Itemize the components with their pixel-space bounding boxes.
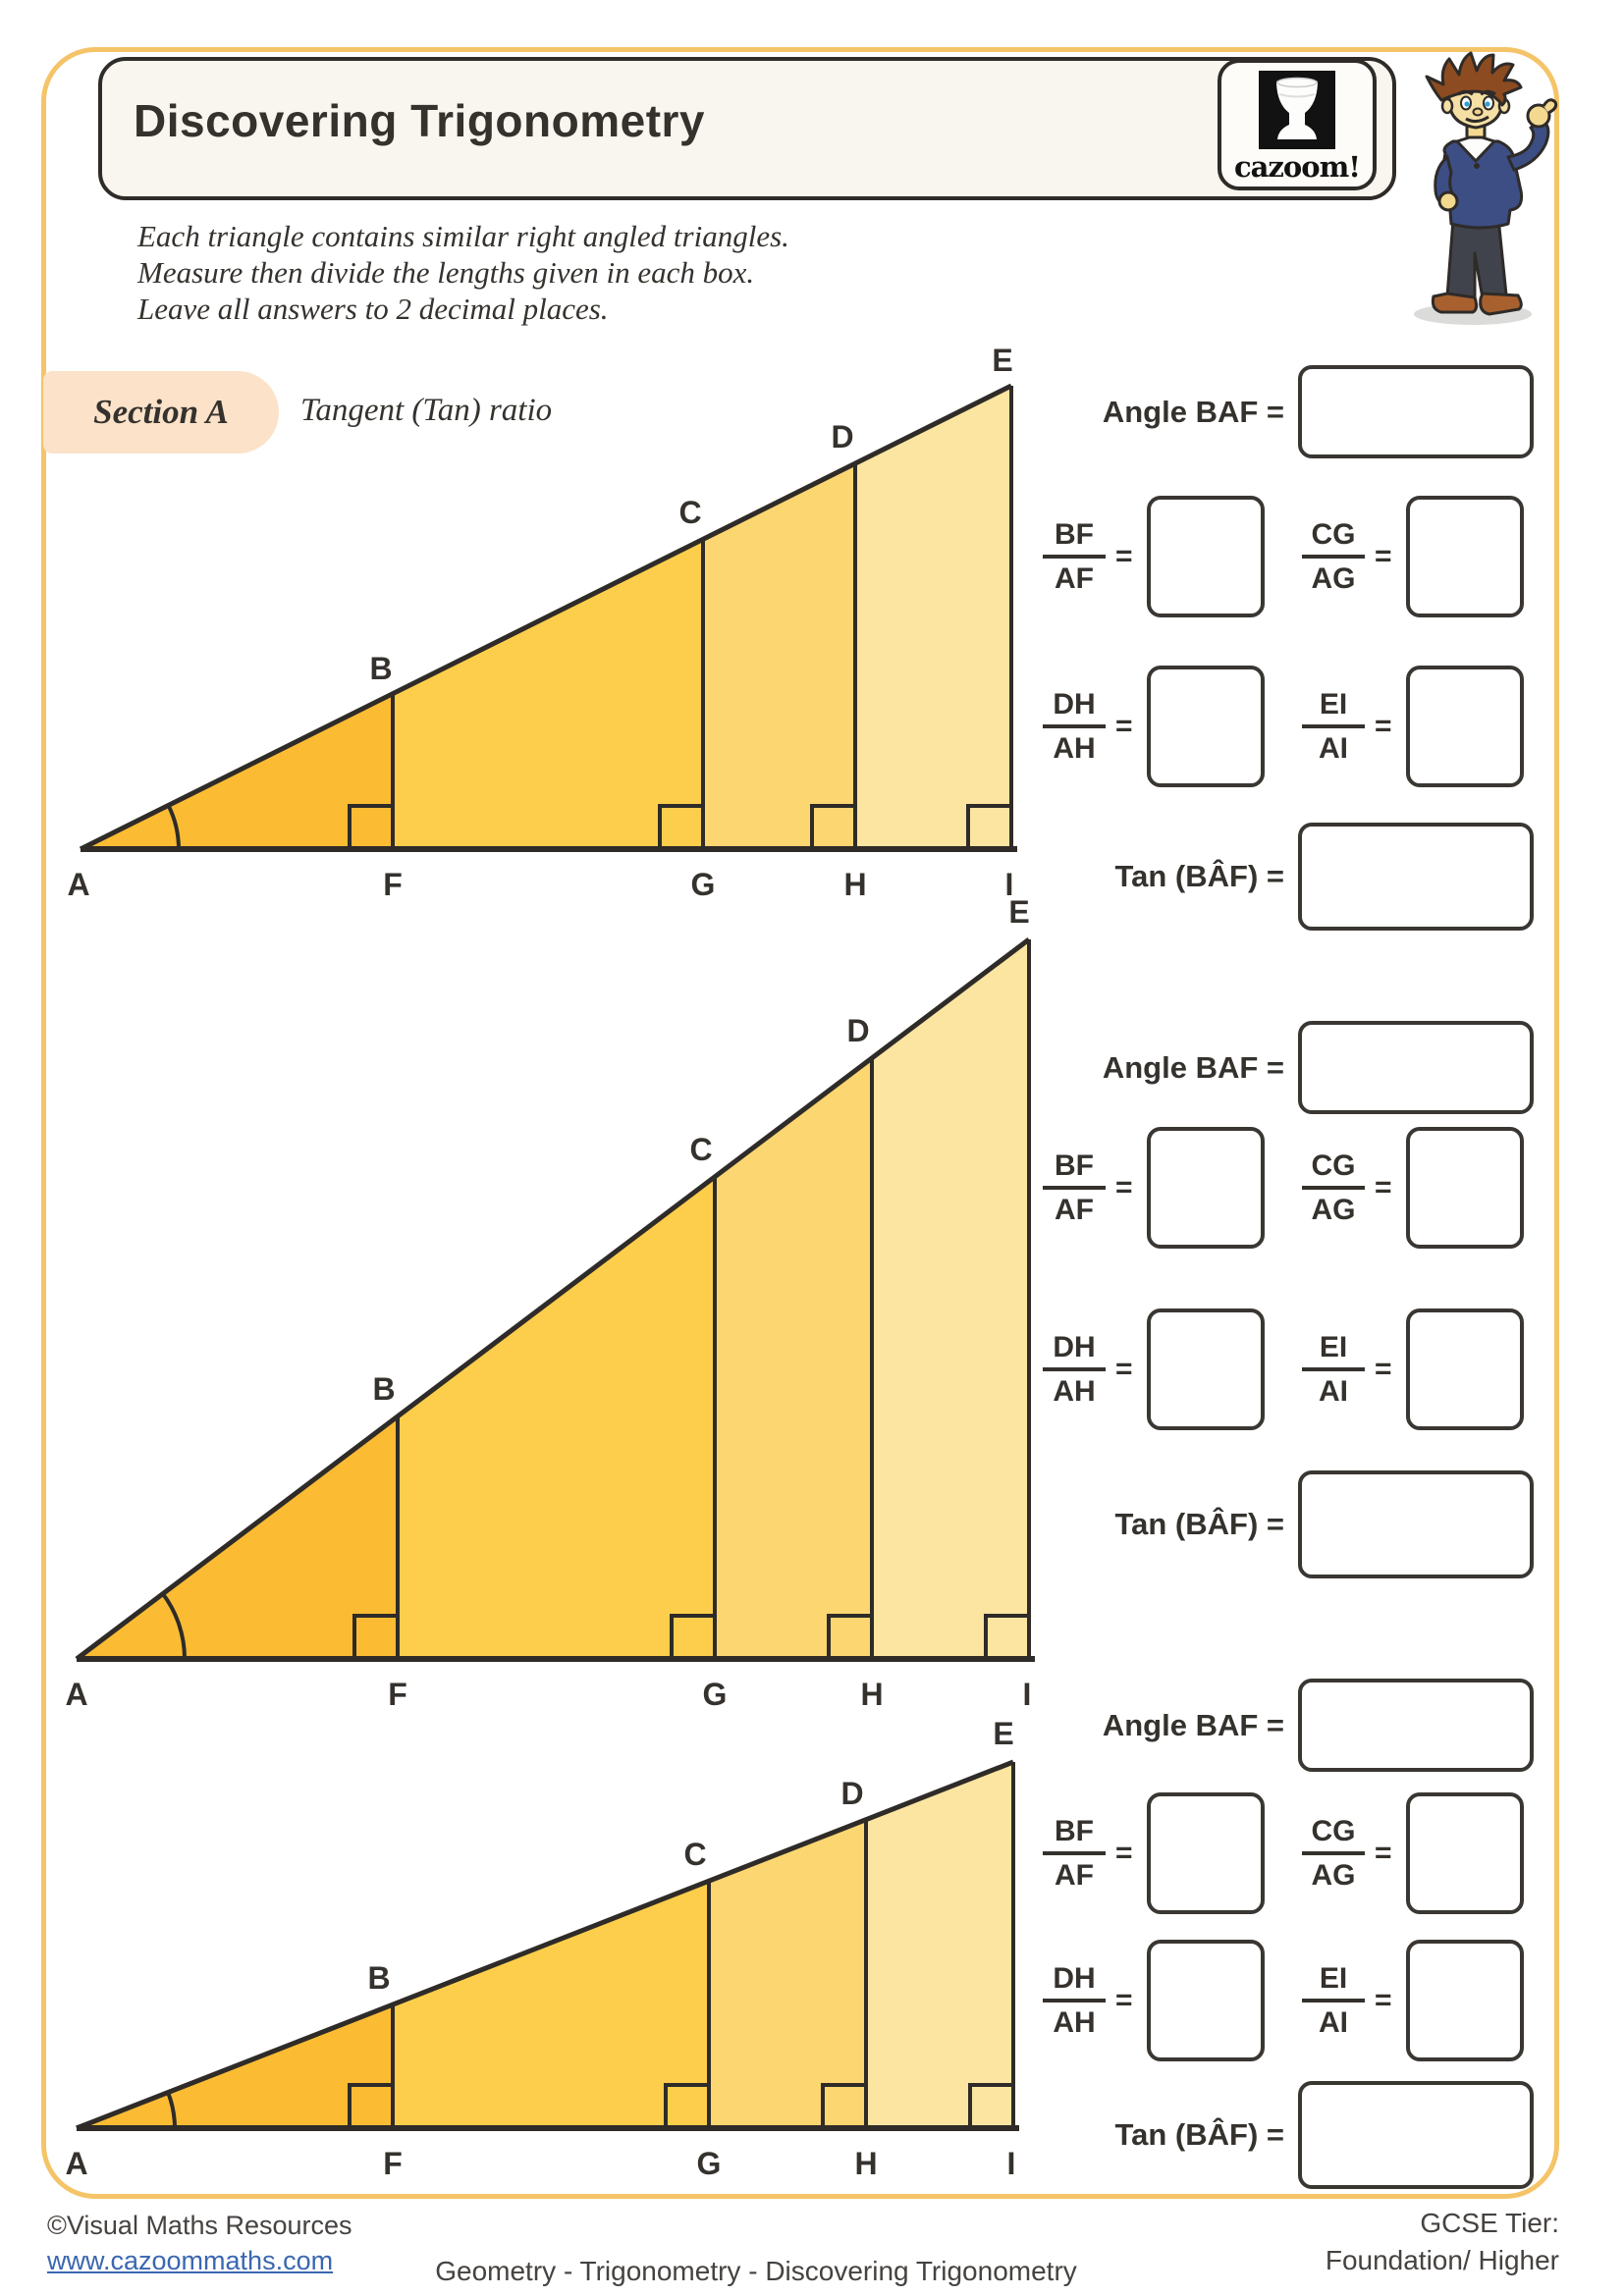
t1-label-d: D bbox=[831, 419, 853, 454]
fraction-bar bbox=[1302, 1367, 1365, 1371]
worksheet-page: Discovering Trigonometry cazoom! bbox=[0, 0, 1624, 2296]
t3-label-f: F bbox=[383, 2146, 403, 2181]
equals-sign: = bbox=[1115, 1984, 1133, 2017]
fraction-bar bbox=[1302, 724, 1365, 728]
set2-cg-ag-answer-box[interactable] bbox=[1406, 1127, 1524, 1249]
frac-den: AH bbox=[1053, 1376, 1095, 1408]
triangle3-band-fg bbox=[393, 1881, 709, 2128]
set3-tan-label: Tan (BÂF) = bbox=[1115, 2117, 1285, 2153]
set1-frac-cg-ag: CG AG = bbox=[1302, 496, 1524, 617]
set2-angle-label: Angle BAF = bbox=[1103, 1050, 1284, 1086]
t3-label-d: D bbox=[840, 1776, 863, 1811]
fraction-ei-ai: EI AI bbox=[1302, 689, 1365, 765]
fraction-bar bbox=[1302, 555, 1365, 559]
t2-label-i: I bbox=[1023, 1677, 1032, 1712]
fraction-dh-ah: DH AH bbox=[1043, 689, 1106, 765]
triangle1-band-fg bbox=[393, 539, 703, 849]
frac-num: BF bbox=[1055, 519, 1094, 551]
set3-cg-ag-answer-box[interactable] bbox=[1406, 1792, 1524, 1914]
set1-dh-ah-answer-box[interactable] bbox=[1147, 666, 1265, 787]
triangle-2: A F G H I B C D E bbox=[65, 894, 1035, 1712]
set3-frac-ei-ai: EI AI = bbox=[1302, 1940, 1524, 2061]
t2-label-d: D bbox=[846, 1013, 869, 1048]
equals-sign: = bbox=[1115, 1837, 1133, 1870]
frac-den: AG bbox=[1312, 1195, 1356, 1226]
frac-num: DH bbox=[1053, 689, 1095, 721]
set1-bf-af-answer-box[interactable] bbox=[1147, 496, 1265, 617]
set3-tan-answer-box[interactable] bbox=[1298, 2081, 1534, 2189]
frac-num: DH bbox=[1053, 1963, 1095, 1995]
t3-label-g: G bbox=[697, 2146, 722, 2181]
set1-frac-bf-af: BF AF = bbox=[1043, 496, 1265, 617]
frac-num: DH bbox=[1053, 1332, 1095, 1363]
triangle-1: A F G H I B C D E bbox=[67, 343, 1017, 902]
frac-den: AG bbox=[1312, 563, 1356, 595]
footer-tier: GCSE Tier: Foundation/ Higher bbox=[1326, 2205, 1559, 2279]
frac-den: AF bbox=[1055, 1860, 1094, 1892]
t2-label-b: B bbox=[372, 1371, 395, 1407]
t2-label-g: G bbox=[703, 1677, 728, 1712]
frac-num: EI bbox=[1320, 1963, 1347, 1995]
fraction-ei-ai: EI AI bbox=[1302, 1332, 1365, 1408]
equals-sign: = bbox=[1375, 1171, 1392, 1204]
t2-label-h: H bbox=[860, 1677, 883, 1712]
fraction-cg-ag: CG AG bbox=[1302, 1150, 1365, 1226]
fraction-bar bbox=[1043, 1186, 1106, 1190]
set3-angle-answer-box[interactable] bbox=[1298, 1679, 1534, 1772]
equals-sign: = bbox=[1115, 710, 1133, 743]
triangle-3: A F G H I B C D E bbox=[65, 1716, 1019, 2181]
set3-tan-row: Tan (BÂF) = bbox=[1115, 2081, 1535, 2189]
frac-den: AF bbox=[1055, 1195, 1094, 1226]
footer-tier-line2: Foundation/ Higher bbox=[1326, 2242, 1559, 2279]
set1-frac-dh-ah: DH AH = bbox=[1043, 666, 1265, 787]
t3-label-h: H bbox=[854, 2146, 877, 2181]
set3-ei-ai-answer-box[interactable] bbox=[1406, 1940, 1524, 2061]
set1-tan-label: Tan (BÂF) = bbox=[1115, 859, 1285, 894]
t2-label-c: C bbox=[689, 1132, 712, 1167]
fraction-bar bbox=[1043, 1367, 1106, 1371]
triangle2-band-gh bbox=[715, 1058, 872, 1659]
frac-num: EI bbox=[1320, 689, 1347, 721]
fraction-bar bbox=[1043, 1851, 1106, 1855]
equals-sign: = bbox=[1115, 1171, 1133, 1204]
set1-angle-label: Angle BAF = bbox=[1103, 395, 1284, 430]
equals-sign: = bbox=[1375, 540, 1392, 573]
footer-copyright: ©Visual Maths Resources bbox=[47, 2211, 352, 2241]
fraction-bf-af: BF AF bbox=[1043, 1816, 1106, 1892]
set2-ei-ai-answer-box[interactable] bbox=[1406, 1308, 1524, 1430]
set3-frac-bf-af: BF AF = bbox=[1043, 1792, 1265, 1914]
t3-label-i: I bbox=[1007, 2146, 1016, 2181]
frac-num: EI bbox=[1320, 1332, 1347, 1363]
set1-frac-ei-ai: EI AI = bbox=[1302, 666, 1524, 787]
triangle2-band-fg bbox=[398, 1177, 715, 1659]
t1-label-a: A bbox=[67, 867, 89, 902]
t1-label-b: B bbox=[369, 651, 392, 686]
set1-ei-ai-answer-box[interactable] bbox=[1406, 666, 1524, 787]
t2-label-f: F bbox=[388, 1677, 407, 1712]
set3-frac-dh-ah: DH AH = bbox=[1043, 1940, 1265, 2061]
fraction-dh-ah: DH AH bbox=[1043, 1963, 1106, 2039]
set2-angle-row: Angle BAF = bbox=[1103, 1021, 1534, 1114]
frac-num: BF bbox=[1055, 1816, 1094, 1847]
set3-frac-cg-ag: CG AG = bbox=[1302, 1792, 1524, 1914]
fraction-ei-ai: EI AI bbox=[1302, 1963, 1365, 2039]
frac-den: AF bbox=[1055, 563, 1094, 595]
frac-den: AI bbox=[1319, 2007, 1348, 2039]
frac-num: CG bbox=[1312, 1150, 1356, 1182]
set3-angle-label: Angle BAF = bbox=[1103, 1708, 1284, 1743]
t3-label-b: B bbox=[367, 1960, 390, 1996]
set2-tan-row: Tan (BÂF) = bbox=[1115, 1470, 1535, 1578]
triangle3-band-gh bbox=[709, 1820, 866, 2128]
set2-tan-answer-box[interactable] bbox=[1298, 1470, 1534, 1578]
equals-sign: = bbox=[1375, 1837, 1392, 1870]
set1-cg-ag-answer-box[interactable] bbox=[1406, 496, 1524, 617]
fraction-bar bbox=[1302, 1851, 1365, 1855]
equals-sign: = bbox=[1375, 1353, 1392, 1386]
triangle1-band-hi bbox=[855, 386, 1011, 849]
t3-label-a: A bbox=[65, 2146, 87, 2181]
frac-num: CG bbox=[1312, 519, 1356, 551]
equals-sign: = bbox=[1375, 1984, 1392, 2017]
footer-tier-line1: GCSE Tier: bbox=[1326, 2205, 1559, 2242]
set2-frac-dh-ah: DH AH = bbox=[1043, 1308, 1265, 1430]
set2-tan-label: Tan (BÂF) = bbox=[1115, 1507, 1285, 1542]
footer-breadcrumb: Geometry - Trigonometry - Discovering Tr… bbox=[167, 2256, 1345, 2287]
t2-label-e: E bbox=[1008, 894, 1029, 930]
fraction-dh-ah: DH AH bbox=[1043, 1332, 1106, 1408]
fraction-cg-ag: CG AG bbox=[1302, 1816, 1365, 1892]
frac-den: AH bbox=[1053, 2007, 1095, 2039]
frac-num: CG bbox=[1312, 1816, 1356, 1847]
equals-sign: = bbox=[1115, 540, 1133, 573]
fraction-cg-ag: CG AG bbox=[1302, 519, 1365, 595]
t2-label-a: A bbox=[65, 1677, 87, 1712]
fraction-bar bbox=[1043, 724, 1106, 728]
t1-label-f: F bbox=[383, 867, 403, 902]
t3-label-e: E bbox=[993, 1716, 1013, 1751]
set1-angle-answer-box[interactable] bbox=[1298, 365, 1534, 458]
fraction-bf-af: BF AF bbox=[1043, 519, 1106, 595]
set2-dh-ah-answer-box[interactable] bbox=[1147, 1308, 1265, 1430]
frac-den: AH bbox=[1053, 733, 1095, 765]
t1-label-c: C bbox=[678, 495, 701, 530]
triangle1-band-gh bbox=[703, 463, 855, 849]
set2-frac-cg-ag: CG AG = bbox=[1302, 1127, 1524, 1249]
set3-bf-af-answer-box[interactable] bbox=[1147, 1792, 1265, 1914]
set1-tan-answer-box[interactable] bbox=[1298, 823, 1534, 931]
set1-tan-row: Tan (BÂF) = bbox=[1115, 823, 1535, 931]
fraction-bar bbox=[1043, 555, 1106, 559]
fraction-bar bbox=[1302, 1999, 1365, 2002]
triangle2-band-hi bbox=[872, 939, 1029, 1659]
set3-angle-row: Angle BAF = bbox=[1103, 1679, 1534, 1772]
set1-angle-row: Angle BAF = bbox=[1103, 365, 1534, 458]
frac-num: BF bbox=[1055, 1150, 1094, 1182]
fraction-bar bbox=[1043, 1999, 1106, 2002]
set2-frac-ei-ai: EI AI = bbox=[1302, 1308, 1524, 1430]
t1-label-e: E bbox=[992, 343, 1012, 378]
t3-label-c: C bbox=[683, 1837, 706, 1872]
set2-frac-bf-af: BF AF = bbox=[1043, 1127, 1265, 1249]
set3-dh-ah-answer-box[interactable] bbox=[1147, 1940, 1265, 2061]
t1-label-h: H bbox=[843, 867, 866, 902]
fraction-bar bbox=[1302, 1186, 1365, 1190]
triangle3-band-hi bbox=[866, 1762, 1013, 2128]
equals-sign: = bbox=[1115, 1353, 1133, 1386]
t1-label-g: G bbox=[691, 867, 716, 902]
frac-den: AG bbox=[1312, 1860, 1356, 1892]
frac-den: AI bbox=[1319, 733, 1348, 765]
frac-den: AI bbox=[1319, 1376, 1348, 1408]
fraction-bf-af: BF AF bbox=[1043, 1150, 1106, 1226]
set2-bf-af-answer-box[interactable] bbox=[1147, 1127, 1265, 1249]
set2-angle-answer-box[interactable] bbox=[1298, 1021, 1534, 1114]
equals-sign: = bbox=[1375, 710, 1392, 743]
